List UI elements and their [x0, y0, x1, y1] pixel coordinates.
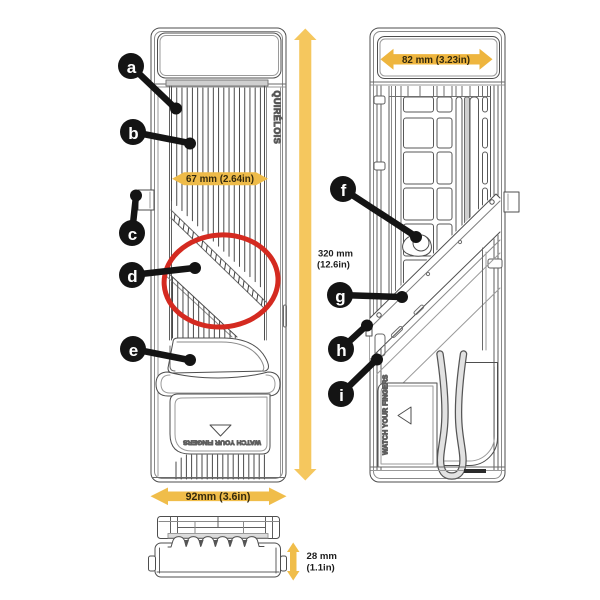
svg-text:i: i [339, 386, 344, 405]
svg-text:f: f [341, 181, 347, 200]
svg-text:QUIRÉLOIS: QUIRÉLOIS [272, 91, 282, 145]
svg-text:b: b [128, 124, 138, 143]
svg-text:h: h [336, 341, 346, 360]
svg-text:(12.6in): (12.6in) [317, 259, 350, 270]
svg-text:e: e [129, 341, 138, 360]
svg-text:28 mm: 28 mm [307, 551, 337, 562]
svg-text:c: c [128, 225, 137, 244]
svg-text:d: d [127, 267, 137, 286]
svg-text:67 mm (2.64in): 67 mm (2.64in) [186, 174, 254, 185]
svg-text:92mm (3.6in): 92mm (3.6in) [186, 491, 251, 503]
svg-text:320 mm: 320 mm [318, 248, 353, 259]
svg-text:82 mm (3.23in): 82 mm (3.23in) [402, 55, 470, 66]
svg-text:WATCH YOUR FINGERS: WATCH YOUR FINGERS [183, 439, 261, 446]
svg-text:a: a [127, 58, 137, 77]
svg-text:WATCH YOUR FINGERS: WATCH YOUR FINGERS [383, 374, 390, 455]
svg-text:g: g [335, 287, 345, 306]
svg-text:(1.1in): (1.1in) [307, 563, 335, 574]
